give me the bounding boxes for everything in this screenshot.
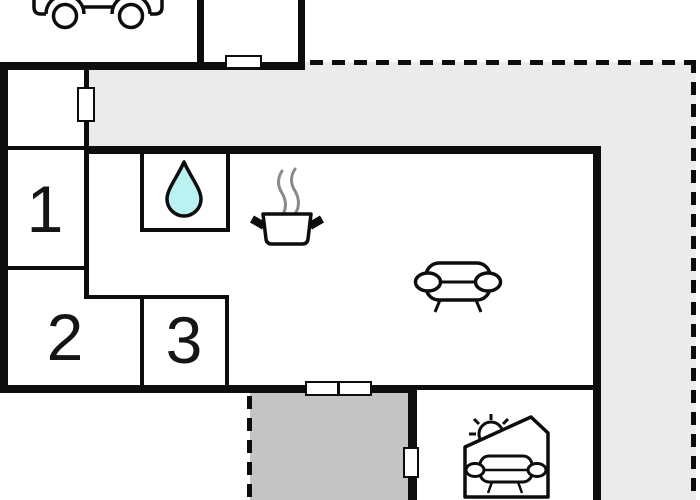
wall-shed-right xyxy=(298,0,305,70)
wall-sunroom-left xyxy=(408,385,417,500)
wall-room3-right xyxy=(225,295,229,390)
wall-room2-room3 xyxy=(140,295,144,390)
room-3-label: 3 xyxy=(154,307,214,373)
wall-bathroom-bottom xyxy=(140,228,230,232)
floor-plan: 1 2 3 xyxy=(0,0,700,500)
steam-icon xyxy=(279,171,286,216)
window-south-right xyxy=(338,381,372,396)
window-shed xyxy=(225,55,262,69)
dashed-boundary-terrace-left xyxy=(247,396,252,500)
wall-house-right xyxy=(593,146,601,500)
wall-bathroom-right xyxy=(226,150,230,232)
steam-icon xyxy=(292,169,299,214)
wall-entry-room1 xyxy=(0,146,88,150)
room-1-label: 1 xyxy=(15,176,75,242)
wall-room3-top xyxy=(84,295,229,299)
sofa-icon xyxy=(412,260,504,314)
room-2-label: 2 xyxy=(35,304,95,370)
terrace-lower-covered xyxy=(250,390,412,500)
house-with-sun-and-sofa-icon xyxy=(450,412,554,500)
terrace-right-band xyxy=(601,62,696,500)
window-entry xyxy=(77,87,95,122)
wall-house-left xyxy=(0,62,8,393)
wall-room1-room2 xyxy=(0,266,88,270)
car-icon xyxy=(22,0,174,31)
window-south-left xyxy=(305,381,339,396)
wall-living-sunroom xyxy=(417,385,593,390)
wall-house-top xyxy=(88,146,601,154)
water-drop-icon xyxy=(163,159,205,217)
window-sunroom xyxy=(403,447,419,478)
wall-bathroom-left xyxy=(140,150,144,232)
dashed-boundary-right xyxy=(691,60,696,500)
cooking-pot-icon xyxy=(249,168,325,246)
wall-carport-right xyxy=(197,0,204,70)
dashed-boundary-top xyxy=(310,60,696,65)
